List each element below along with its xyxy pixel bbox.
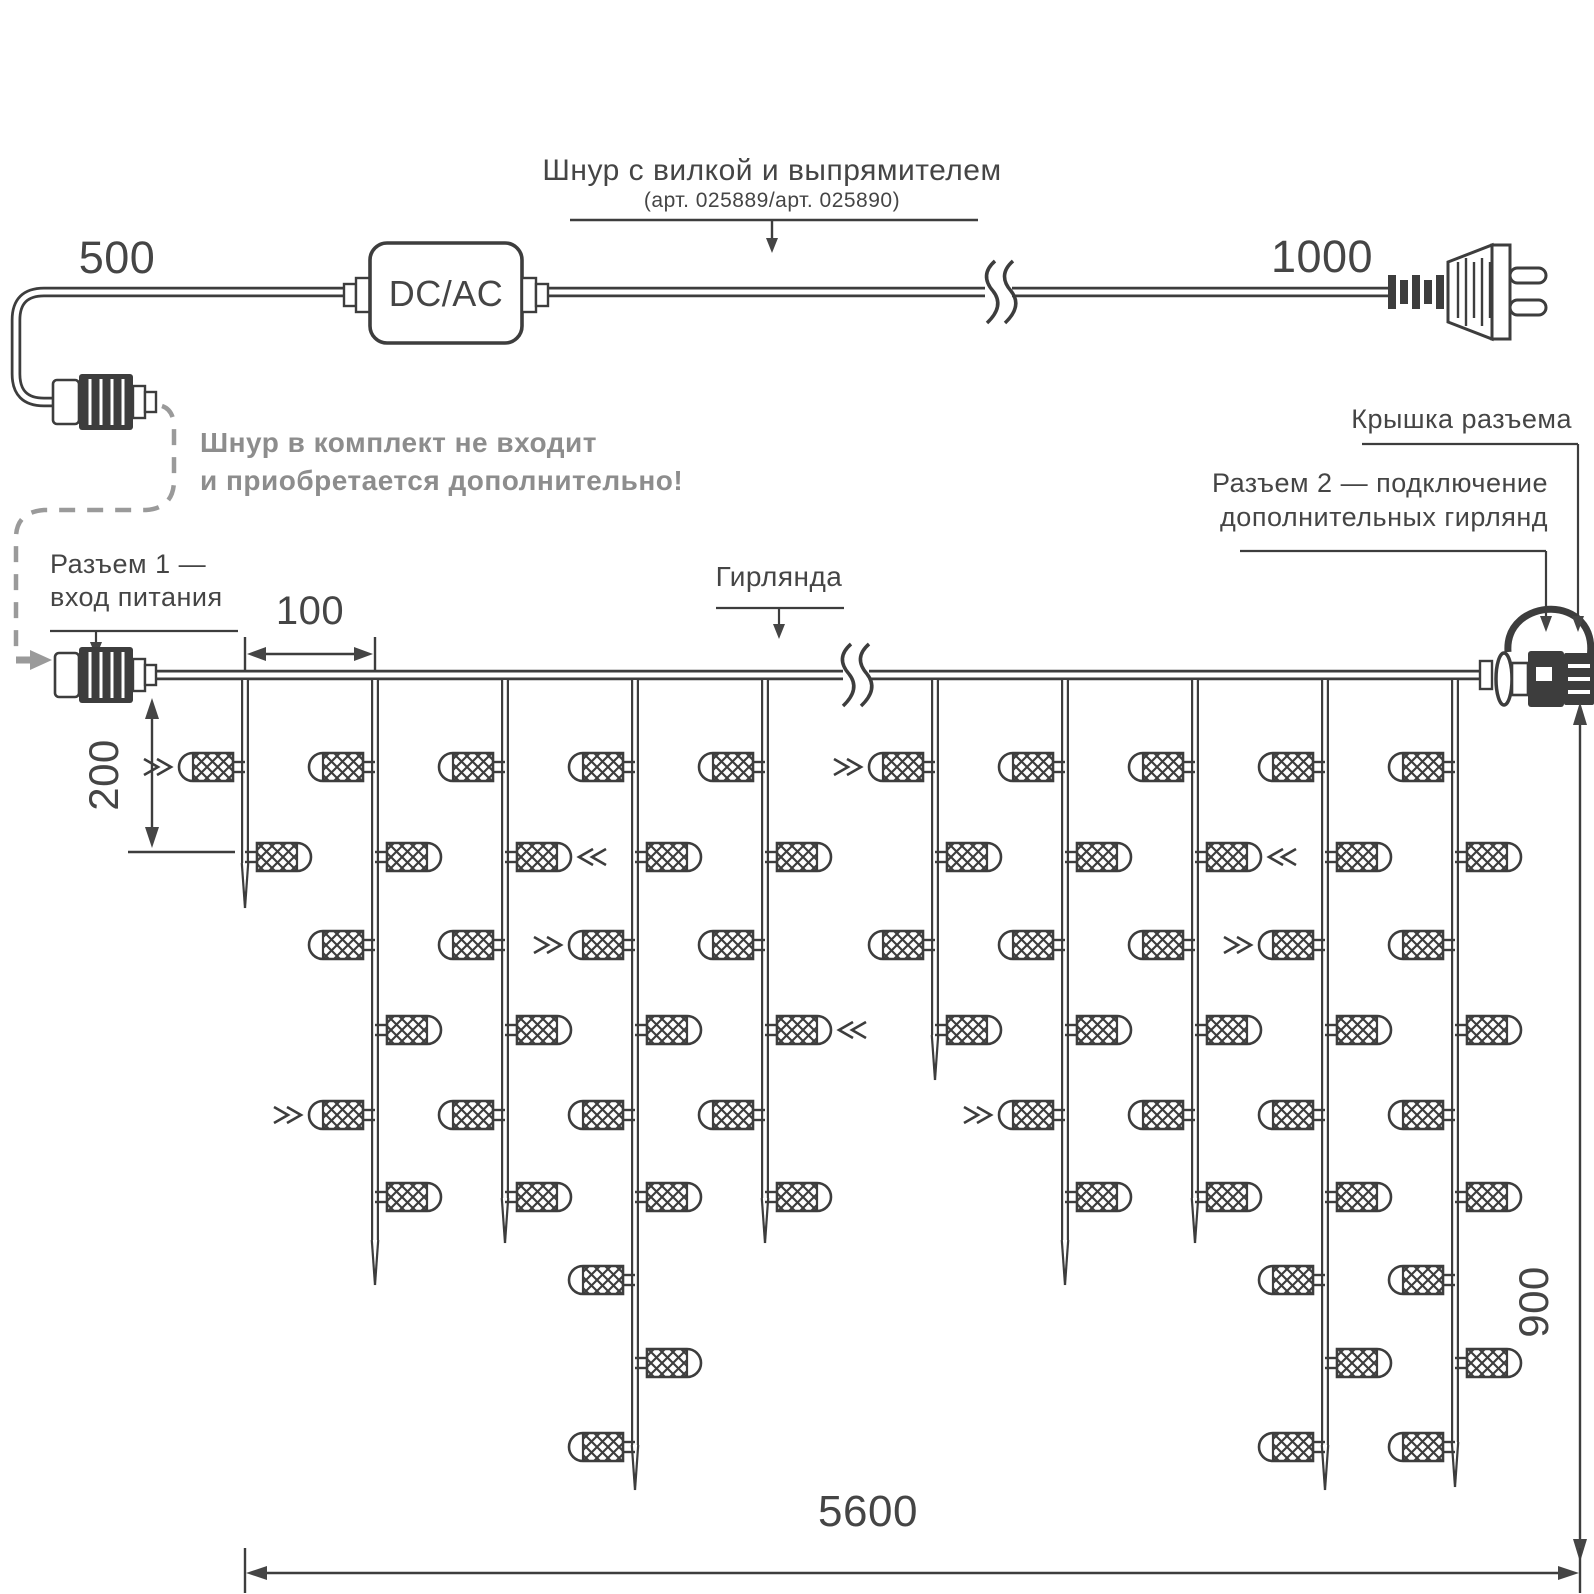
diagram-canvas: DC/ACШнур с вилкой и выпрямителем(арт. 0… [0,0,1594,1594]
flash-marker [964,1107,991,1123]
connector1-label-line2: вход питания [50,582,223,612]
flash-marker [534,937,561,953]
connector2-leader [1240,551,1552,632]
cable-break [986,261,1015,323]
dim-200-label: 200 [80,739,127,811]
flash-marker [579,849,606,865]
dim-5600: 5600 [245,1487,1580,1593]
connector2-label-line2: дополнительных гирлянд [1220,502,1548,532]
power-in-arrow [16,650,52,670]
arrowhead [145,827,159,848]
dim-100: 100 [245,589,375,671]
arrowhead [247,647,266,661]
flash-marker [1269,849,1296,865]
flash-marker [834,759,861,775]
arrowhead [354,647,373,661]
arrowhead [30,650,52,670]
drop [301,680,449,1285]
cord-title-leader [570,220,978,253]
converter-label: DC/AC [389,273,504,314]
drop [431,680,579,1243]
garland-label: Гирлянда [716,561,843,592]
dim-100-label: 100 [276,589,344,633]
dim-1000: 1000 [1271,231,1373,282]
drop [1121,680,1269,1243]
flash-marker [144,759,171,775]
dim-900-label: 900 [1510,1266,1557,1338]
cord-title: Шнур с вилкой и выпрямителем [542,154,1001,187]
garland-leader [716,608,844,639]
drop [861,680,1009,1080]
dim-900: 900 [1510,702,1587,1562]
dim-500: 500 [79,232,156,283]
drop [991,680,1139,1285]
flash-marker [274,1107,301,1123]
drop [561,680,709,1490]
arrowhead [145,698,159,719]
arrowhead [1540,616,1552,632]
connector2-label-line1: Разъем 2 — подключение [1212,468,1548,498]
power-plug-icon [1388,245,1546,339]
arrowhead [246,1566,267,1580]
dim-5600-label: 5600 [818,1487,918,1536]
flash-marker [1224,937,1251,953]
cable-break [842,644,871,706]
cap-label: Крышка разъема [1351,404,1572,434]
cord-connector [53,374,156,430]
arrowhead [1573,702,1587,725]
arrowhead [1558,1566,1579,1580]
arrowhead [766,238,778,253]
garland-diagram: DC/ACШнур с вилкой и выпрямителем(арт. 0… [0,0,1594,1594]
connector-1 [55,647,156,703]
cord-subtitle: (арт. 025889/арт. 025890) [644,189,900,212]
drop [1381,680,1529,1487]
flash-marker [839,1022,866,1038]
arrowhead [773,624,785,639]
note-line2: и приобретается дополнительно! [200,465,683,496]
drop [1251,680,1399,1490]
drop [691,680,839,1243]
garland [55,609,1594,1490]
connector1-label-line1: Разъем 1 — [50,549,206,579]
note-line1: Шнур в комплект не входит [200,427,597,458]
drop [171,680,319,908]
dc-ac-converter: DC/AC [344,243,548,343]
